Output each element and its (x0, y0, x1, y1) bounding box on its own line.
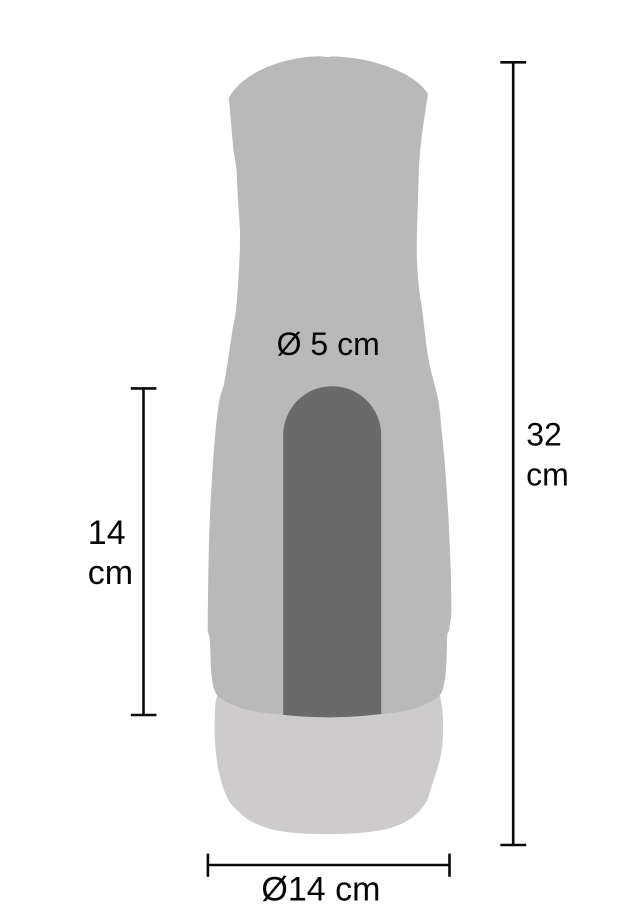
svg-text:14: 14 (88, 514, 126, 552)
svg-text:cm: cm (526, 456, 569, 492)
svg-text:Ø 5 cm: Ø 5 cm (277, 326, 380, 362)
svg-text:Ø14 cm: Ø14 cm (261, 871, 380, 907)
svg-text:32: 32 (526, 417, 562, 453)
svg-text:cm: cm (88, 554, 133, 592)
